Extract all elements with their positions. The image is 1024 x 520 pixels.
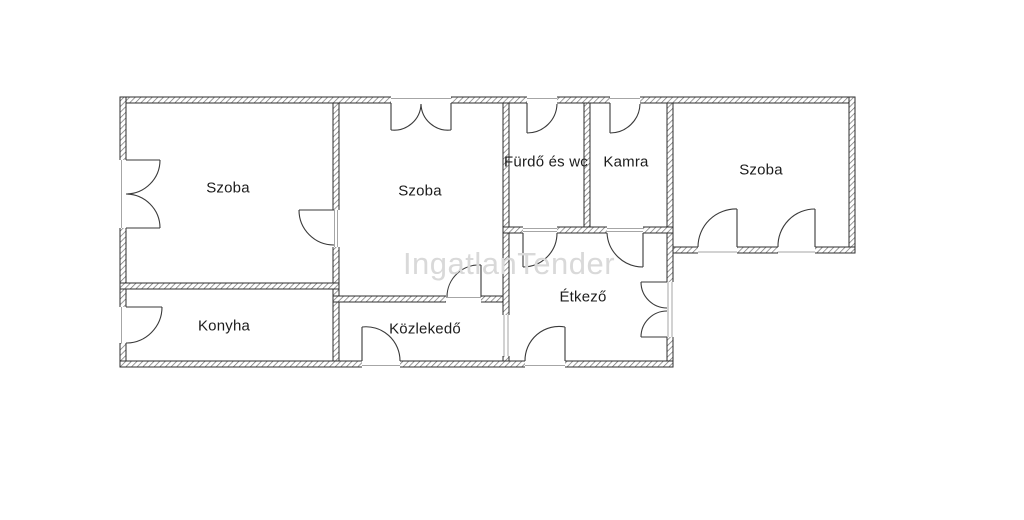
wall-szoba1-konyha: [120, 283, 339, 289]
wall-szoba2-kozlekedo: [333, 296, 509, 302]
room-label-etkezo: Étkező: [559, 289, 606, 306]
door-szoba2-top-double: [391, 103, 451, 130]
room-label-szoba-right: Szoba: [739, 162, 783, 179]
door-etkezo-double: [641, 282, 667, 337]
door-etkezo-entrance: [525, 326, 565, 361]
room-label-konyha: Konyha: [198, 318, 250, 335]
door-kamra: [610, 103, 640, 133]
room-label-szoba-left: Szoba: [206, 180, 250, 197]
room-label-kamra: Kamra: [603, 154, 648, 171]
door-szoba3-right: [778, 209, 815, 247]
room-label-kozlekedo: Közlekedő: [389, 321, 461, 338]
door-szoba1-szoba2: [299, 210, 334, 245]
room-label-furdo: Fürdő és wc: [504, 154, 588, 171]
door-furdo: [527, 103, 557, 133]
wall-szoba-right-bottom: [668, 247, 855, 253]
door-szoba3-left: [698, 209, 737, 247]
wall-top: [120, 97, 855, 103]
door-konyha: [126, 307, 162, 343]
watermark: IngatlanTender: [403, 246, 615, 282]
floor-plan-page: IngatlanTender Szoba Szoba Fürdő és wc K…: [0, 0, 1024, 520]
wall-right-outer: [849, 97, 855, 253]
room-label-szoba-middle: Szoba: [398, 183, 442, 200]
door-szoba1-double: [126, 160, 160, 228]
